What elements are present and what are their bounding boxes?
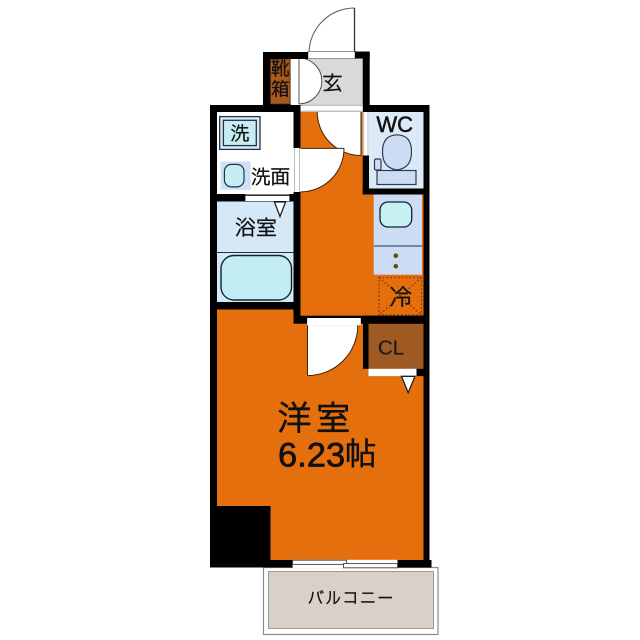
svg-text:6.23: 6.23 <box>278 437 345 475</box>
svg-text:WC: WC <box>376 112 413 137</box>
svg-text:CL: CL <box>378 337 404 360</box>
